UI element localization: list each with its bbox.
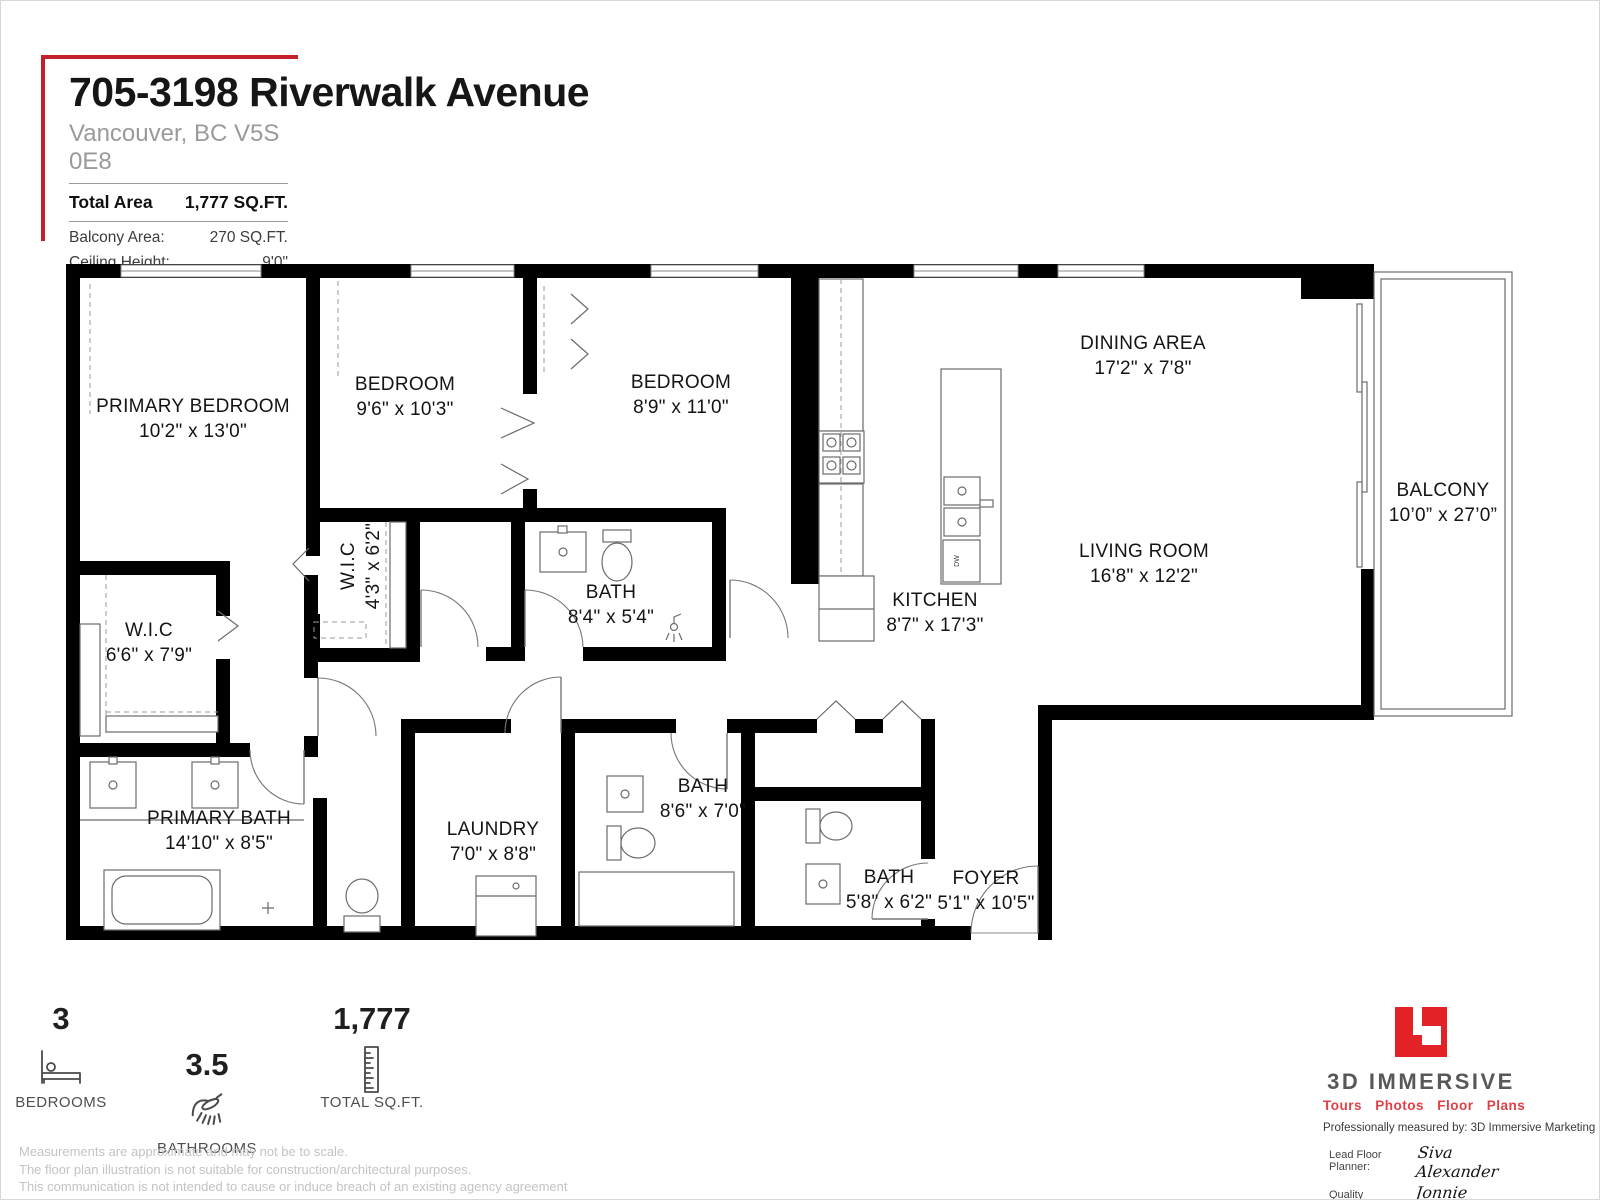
3d-immersive-logo	[1395, 1007, 1447, 1057]
room-name: FOYER	[953, 868, 1020, 889]
logo-square	[1422, 1026, 1441, 1045]
branding-block: 3D IMMERSIVE Tours Photos Floor Plans Pr…	[1323, 1007, 1519, 1200]
total-area-label: Total Area	[69, 192, 153, 213]
disclaimer-line-2: The floor plan illustration is not suita…	[19, 1161, 568, 1179]
planner-signature: Siva Alexander	[1415, 1143, 1521, 1181]
balcony-area-label: Balcony Area:	[69, 229, 165, 247]
room-label-primary-bedroom: PRIMARY BEDROOM10'2" x 13'0"	[96, 396, 290, 442]
room-name: W.I.C	[338, 542, 359, 590]
room-dimensions: 7'0" x 8'8"	[450, 844, 536, 865]
room-dimensions: 4'3" x 6'2"	[363, 523, 384, 609]
room-dimensions: 10’0” x 27’0”	[1389, 505, 1497, 526]
qa-label: Quality Assurance:	[1329, 1189, 1408, 1200]
stat-bedrooms: 3 BEDROOMS	[15, 1001, 107, 1111]
credits: Lead Floor Planner: Siva Alexander Quali…	[1323, 1143, 1519, 1200]
room-dimensions: 9'6" x 10'3"	[356, 399, 453, 420]
room-label-bedroom: BEDROOM9'6" x 10'3"	[355, 374, 455, 420]
room-name: BEDROOM	[631, 372, 731, 393]
page-title: 705-3198 Riverwalk Avenue	[69, 71, 589, 114]
room-label-bath: BATH8'6" x 7'0"	[660, 776, 746, 822]
measured-by-line: Professionally measured by: 3D Immersive…	[1323, 1122, 1519, 1134]
header: 705-3198 Riverwalk Avenue Vancouver, BC …	[69, 71, 589, 272]
floorplan-page: 705-3198 Riverwalk Avenue Vancouver, BC …	[0, 0, 1600, 1200]
disclaimer: Measurements are approximate and may not…	[19, 1143, 568, 1196]
room-name: LAUNDRY	[447, 819, 540, 840]
room-name: PRIMARY BATH	[147, 808, 291, 829]
room-name: LIVING ROOM	[1079, 541, 1209, 562]
qa-signature: Jonnie Graham	[1413, 1183, 1521, 1200]
room-label-dining-area: DINING AREA17'2" x 7'8"	[1080, 333, 1206, 379]
total-sqft-count: 1,777	[297, 1001, 447, 1037]
stat-bathrooms: 3.5 BATHROOMS	[142, 1001, 272, 1157]
shower-icon	[142, 1091, 272, 1137]
floor-plan-svg: DW	[66, 264, 1516, 956]
room-dimensions: 5'8" x 6'2"	[846, 892, 932, 913]
room-label-laundry: LAUNDRY7'0" x 8'8"	[447, 819, 540, 865]
disclaimer-line-1: Measurements are approximate and may not…	[19, 1143, 568, 1161]
ruler-icon	[297, 1045, 447, 1091]
room-name: BATH	[586, 582, 636, 603]
room-name: BALCONY	[1397, 480, 1490, 501]
qa-row: Quality Assurance: Jonnie Graham	[1329, 1183, 1519, 1200]
logo-notch	[1413, 1007, 1422, 1035]
room-dimensions: 8'9" x 11'0"	[633, 397, 729, 418]
room-name: DINING AREA	[1080, 333, 1206, 354]
room-name: BEDROOM	[355, 374, 455, 395]
room-label-balcony: BALCONY10’0” x 27’0”	[1389, 480, 1497, 526]
stats-row: 3 BEDROOMS 3.5 BATHROOMS 1,777	[15, 1001, 447, 1157]
room-label-w-i-c: W.I.C6'6" x 7'9"	[106, 620, 192, 666]
brand-tagline: Tours Photos Floor Plans	[1323, 1098, 1519, 1113]
room-name: PRIMARY BEDROOM	[96, 396, 290, 417]
room-dimensions: 8'6" x 7'0"	[660, 801, 746, 822]
bed-icon	[15, 1045, 107, 1091]
balcony-area-value: 270 SQ.FT.	[210, 229, 288, 247]
room-dimensions: 14'10" x 8'5"	[165, 833, 273, 854]
room-label-bath: BATH8'4" x 5'4"	[568, 582, 654, 628]
room-dimensions: 10'2" x 13'0"	[139, 421, 247, 442]
address-subtitle: Vancouver, BC V5S 0E8	[69, 120, 288, 184]
bedrooms-count: 3	[15, 1001, 107, 1037]
room-label-primary-bath: PRIMARY BATH14'10" x 8'5"	[147, 808, 291, 854]
total-area-row: Total Area 1,777 SQ.FT.	[69, 184, 288, 222]
planner-row: Lead Floor Planner: Siva Alexander	[1329, 1143, 1519, 1181]
total-sqft-label: TOTAL SQ.FT.	[297, 1094, 447, 1111]
room-dimensions: 8'7" x 17'3"	[886, 615, 983, 636]
room-label-kitchen: KITCHEN8'7" x 17'3"	[886, 590, 983, 636]
room-name: BATH	[678, 776, 728, 797]
room-dimensions: 8'4" x 5'4"	[568, 607, 654, 628]
room-name: W.I.C	[125, 620, 173, 641]
room-dimensions: 16'8" x 12'2"	[1090, 566, 1198, 587]
room-label-bath: BATH5'8" x 6'2"	[846, 867, 932, 913]
disclaimer-line-3: This communication is not intended to ca…	[19, 1178, 568, 1196]
room-dimensions: 5'1" x 10'5"	[937, 893, 1034, 914]
stat-total-sqft: 1,777 TOTAL SQ.FT.	[297, 1001, 447, 1111]
room-name: KITCHEN	[892, 590, 978, 611]
room-name: BATH	[864, 867, 914, 888]
bathrooms-top	[142, 1001, 272, 1047]
svg-text:DW: DW	[954, 555, 961, 567]
room-dimensions: 6'6" x 7'9"	[106, 645, 192, 666]
bathrooms-count: 3.5	[142, 1047, 272, 1083]
brand-company-name: 3D IMMERSIVE	[1323, 1069, 1519, 1095]
room-label-living-room: LIVING ROOM16'8" x 12'2"	[1079, 541, 1209, 587]
bedrooms-label: BEDROOMS	[15, 1094, 107, 1111]
total-area-value: 1,777 SQ.FT.	[185, 192, 288, 213]
room-label-bedroom: BEDROOM8'9" x 11'0"	[631, 372, 731, 418]
room-dimensions: 17'2" x 7'8"	[1094, 358, 1191, 379]
balcony-area-row: Balcony Area: 270 SQ.FT.	[69, 229, 288, 247]
planner-label: Lead Floor Planner:	[1329, 1149, 1410, 1173]
room-label-w-i-c: W.I.C4'3" x 6'2"	[338, 523, 384, 609]
